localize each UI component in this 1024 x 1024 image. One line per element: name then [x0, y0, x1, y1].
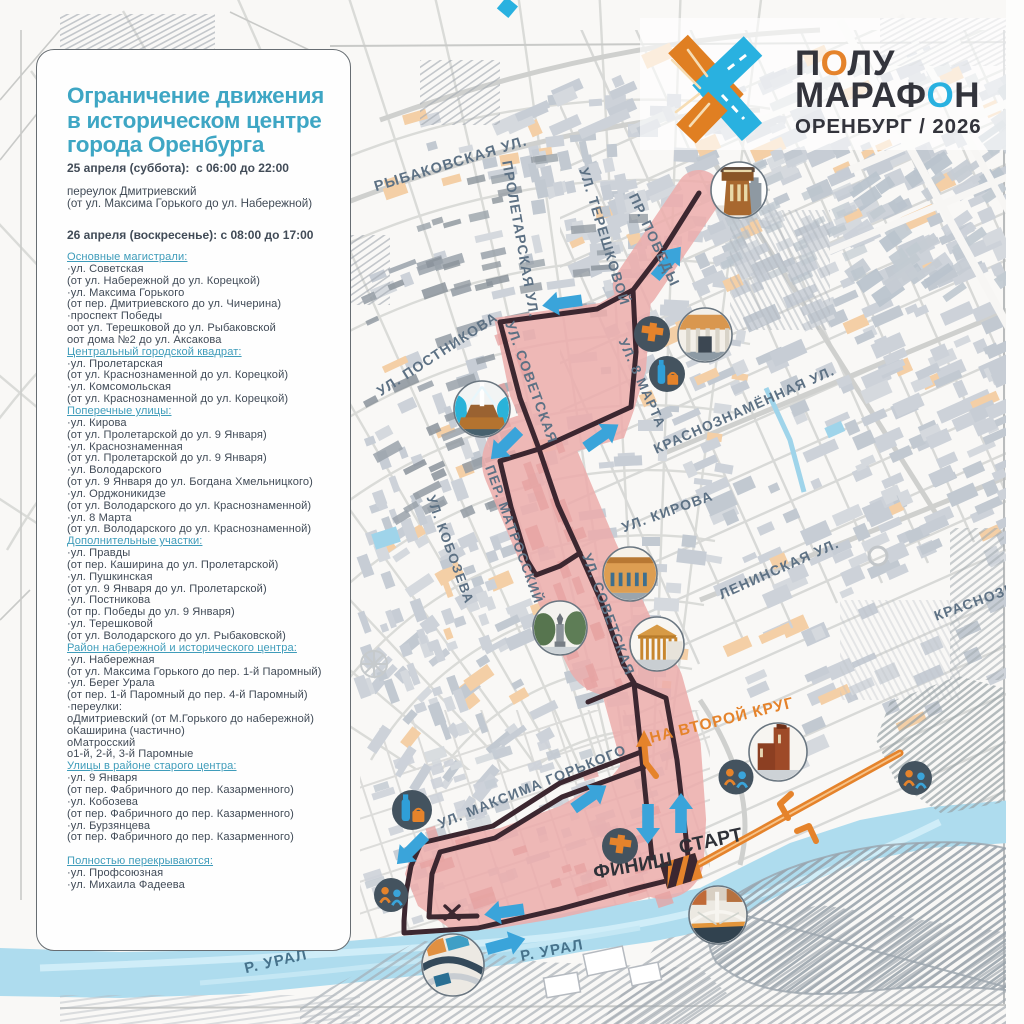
svg-text:ОРЕНБУРГ / 2026: ОРЕНБУРГ / 2026	[795, 115, 982, 138]
svg-text:МАРАФОН: МАРАФОН	[795, 76, 980, 115]
